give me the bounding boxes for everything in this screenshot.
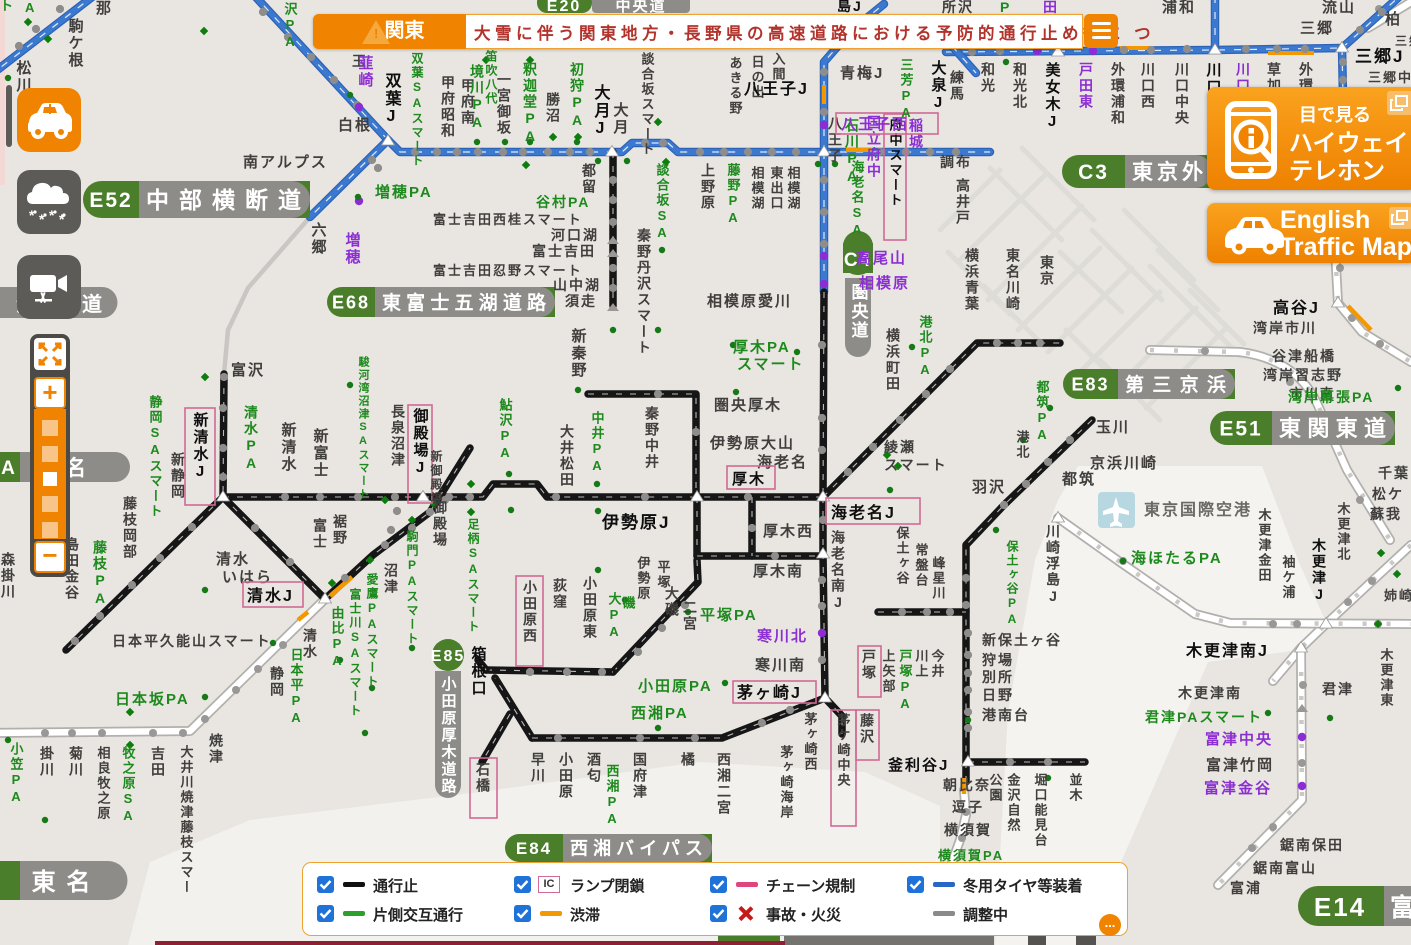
svg-text:箱根口: 箱根口 [470, 645, 487, 697]
svg-text:森掛川: 森掛川 [0, 551, 16, 600]
svg-text:川上: 川上 [914, 649, 930, 679]
svg-text:焼津: 焼津 [208, 732, 224, 765]
svg-text:境川PA: 境川PA [469, 63, 485, 132]
svg-text:清水: 清水 [216, 550, 250, 568]
svg-text:三郷料: 三郷料 [1395, 33, 1411, 48]
svg-text:甲府昭和: 甲府昭和 [440, 75, 456, 139]
svg-text:由比PA: 由比PA [330, 605, 345, 670]
svg-text:港南台: 港南台 [982, 707, 1030, 723]
svg-text:都留: 都留 [581, 163, 597, 195]
svg-text:六郷: 六郷 [310, 221, 327, 256]
svg-text:吉田: 吉田 [150, 745, 166, 778]
svg-text:大井川焼津藤枝スマー: 大井川焼津藤枝スマー [179, 744, 195, 895]
svg-text:圏央厚木: 圏央厚木 [714, 396, 782, 414]
svg-text:小笠PA: 小笠PA [9, 742, 25, 806]
svg-text:ト: ト [0, 0, 15, 13]
svg-text:いはら: いはら [222, 569, 273, 586]
svg-text:木更津北: 木更津北 [1336, 501, 1352, 562]
svg-text:君津: 君津 [1321, 681, 1354, 697]
svg-text:大井松田: 大井松田 [559, 423, 575, 488]
svg-text:浦和: 浦和 [1162, 0, 1196, 16]
svg-text:調布: 調布 [940, 154, 972, 170]
svg-text:堀口能見台: 堀口能見台 [1033, 773, 1049, 848]
svg-text:藤沢: 藤沢 [859, 712, 875, 745]
svg-text:横須賀PA: 横須賀PA [938, 848, 1004, 863]
svg-text:新清水: 新清水 [280, 421, 297, 473]
svg-text:掛川: 掛川 [39, 745, 55, 778]
svg-text:鋸南保田: 鋸南保田 [1280, 837, 1344, 853]
svg-text:清水PA: 清水PA [243, 404, 259, 473]
svg-text:戸塚PA: 戸塚PA [898, 649, 913, 713]
svg-text:御殿場: 御殿場 [432, 499, 448, 548]
svg-text:八王子J: 八王子J [743, 80, 809, 98]
svg-text:新御殿場: 新御殿場 [429, 449, 443, 506]
svg-text:秦野中井: 秦野中井 [644, 405, 660, 470]
svg-text:小田原PA: 小田原PA [638, 678, 713, 695]
svg-text:茅ヶ崎西: 茅ヶ崎西 [803, 711, 818, 772]
svg-text:富士吉田西桂スマート: 富士吉田西桂スマート [433, 212, 583, 227]
svg-text:狩場: 狩場 [982, 652, 1014, 668]
svg-text:松ケ: 松ケ [1372, 486, 1404, 502]
svg-text:寒川南: 寒川南 [755, 656, 806, 674]
svg-text:流山: 流山 [1322, 0, 1356, 16]
svg-text:保土ヶ谷: 保土ヶ谷 [895, 525, 911, 586]
svg-text:釜利谷J: 釜利谷J [887, 756, 949, 774]
svg-text:木更津金田: 木更津金田 [1257, 507, 1273, 583]
svg-text:高尾山: 高尾山 [856, 249, 907, 267]
svg-text:富津金谷: 富津金谷 [1204, 779, 1272, 797]
svg-text:富士吉田: 富士吉田 [532, 243, 596, 259]
svg-text:高谷J: 高谷J [1273, 298, 1320, 317]
svg-text:E20: E20 [547, 0, 581, 15]
svg-text:新秦野: 新秦野 [570, 327, 588, 379]
svg-text:小田原東: 小田原東 [582, 576, 598, 640]
svg-text:茅ケ崎中央: 茅ケ崎中央 [836, 712, 851, 788]
svg-text:E84: E84 [516, 839, 552, 858]
svg-text:小田原: 小田原 [558, 752, 574, 800]
svg-text:谷村PA: 谷村PA [536, 194, 590, 210]
svg-text:相模湖: 相模湖 [786, 165, 801, 211]
svg-text:東 名: 東 名 [32, 868, 93, 896]
svg-text:入間: 入間 [771, 52, 786, 82]
svg-text:寒川北: 寒川北 [757, 627, 808, 645]
svg-text:双葉SAスマート: 双葉SAスマート [410, 52, 424, 168]
svg-text:駒門PAスマート: 駒門PAスマート [405, 529, 419, 646]
svg-text:小田原西: 小田原西 [522, 580, 538, 644]
svg-text:新富士: 新富士 [312, 427, 329, 479]
svg-text:京浜川崎: 京浜川崎 [1090, 454, 1158, 472]
svg-text:那: 那 [96, 0, 113, 17]
svg-text:公園: 公園 [988, 773, 1003, 803]
svg-text:*: * [39, 211, 46, 227]
svg-text:海老名: 海老名 [757, 453, 808, 471]
svg-text:都筑: 都筑 [1061, 470, 1096, 488]
svg-text:海老名SA: 海老名SA [850, 159, 866, 239]
svg-text:C3: C3 [1078, 161, 1109, 184]
svg-text:厚木PA: 厚木PA [733, 338, 791, 356]
svg-text:*: * [59, 211, 66, 227]
svg-text:今井: 今井 [930, 648, 946, 679]
svg-text:川崎浮島J: 川崎浮島J [1045, 524, 1061, 606]
svg-text:小田原厚木道路: 小田原厚木道路 [440, 676, 458, 795]
svg-text:あきる野: あきる野 [728, 56, 743, 116]
svg-text:一宮御坂: 一宮御坂 [496, 72, 512, 136]
svg-text:談合坂SA: 談合坂SA [655, 162, 670, 242]
svg-text:伊勢原J: 伊勢原J [601, 512, 670, 532]
svg-text:駿河湾沼津SAスマート: 駿河湾沼津SAスマート [357, 355, 370, 501]
svg-text:大磯: 大磯 [664, 585, 680, 618]
svg-text:茅ヶ崎J: 茅ヶ崎J [737, 683, 802, 702]
svg-text:足柄SAスマート: 足柄SAスマート [466, 518, 480, 634]
svg-text:東富士五湖道路: 東富士五湖道路 [382, 291, 548, 314]
svg-text:並木: 並木 [1068, 772, 1084, 803]
svg-text:磯: 磯 [621, 595, 636, 611]
svg-text:A: A [1, 458, 17, 479]
svg-text:戸塚: 戸塚 [861, 649, 877, 681]
svg-text:増穂: 増穂 [344, 231, 361, 266]
svg-text:海ほたるPA: 海ほたるPA [1131, 549, 1223, 567]
svg-text:都筑PA: 都筑PA [1035, 379, 1051, 444]
svg-text:清水J: 清水J [247, 586, 294, 605]
svg-text:和光: 和光 [980, 62, 996, 94]
svg-text:西湘PA: 西湘PA [631, 704, 689, 722]
svg-text:富士川SAスマート: 富士川SAスマート [348, 587, 362, 718]
svg-text:酒匂: 酒匂 [586, 752, 602, 784]
svg-text:愛鷹PAスマート: 愛鷹PAスマート [365, 572, 379, 689]
svg-text:富浦: 富浦 [1230, 880, 1262, 896]
svg-text:日本坂PA: 日本坂PA [115, 690, 190, 708]
svg-text:E83: E83 [1071, 374, 1109, 394]
svg-text:金沢自然: 金沢自然 [1006, 772, 1022, 833]
svg-text:韮崎: 韮崎 [357, 54, 374, 89]
svg-text:中井PA: 中井PA [590, 410, 605, 475]
svg-text:御殿場J: 御殿場J [412, 407, 430, 478]
svg-text:高井戸: 高井戸 [955, 177, 971, 226]
svg-text:新清水J: 新清水J [192, 411, 209, 482]
svg-text:大PA: 大PA [607, 591, 622, 641]
svg-text:戸田東: 戸田東 [1078, 62, 1094, 110]
svg-text:P: P [1000, 0, 1011, 15]
svg-text:相模原愛川: 相模原愛川 [707, 292, 792, 310]
svg-text:増穂PA: 増穂PA [375, 183, 433, 201]
svg-text:*: * [49, 207, 56, 223]
svg-text:三芳PA: 三芳PA [899, 58, 914, 122]
svg-text:湾岸幕張PA: 湾岸幕張PA [1288, 389, 1374, 405]
svg-text:島J: 島J [837, 0, 863, 14]
svg-text:中部横断道: 中部横断道 [146, 187, 303, 213]
svg-text:三郷中: 三郷中 [1368, 70, 1411, 85]
svg-text:日本平久能山スマート: 日本平久能山スマート [112, 633, 272, 649]
svg-text:田: 田 [1043, 0, 1059, 15]
svg-text:E52: E52 [89, 189, 132, 212]
svg-text:木更津東: 木更津東 [1379, 647, 1395, 708]
svg-text:柏: 柏 [1385, 10, 1402, 28]
svg-text:富津中央: 富津中央 [1205, 730, 1273, 748]
svg-text:練馬: 練馬 [949, 69, 965, 102]
svg-text:蘇我: 蘇我 [1369, 506, 1402, 522]
svg-text:E85: E85 [431, 648, 465, 665]
svg-text:羽沢: 羽沢 [972, 478, 1006, 496]
svg-text:スマート: スマート [737, 356, 805, 373]
svg-text:長泉沼津: 長泉沼津 [390, 404, 406, 468]
svg-text:茅ヶ崎海岸: 茅ヶ崎海岸 [779, 744, 794, 820]
svg-text:君津PAスマート: 君津PAスマート [1144, 709, 1263, 725]
svg-text:港北PA: 港北PA [918, 314, 933, 379]
svg-text:河口湖: 河口湖 [551, 227, 599, 243]
svg-text:山中湖: 山中湖 [553, 277, 601, 293]
svg-text:大月: 大月 [612, 101, 630, 136]
svg-text:E14: E14 [1314, 892, 1366, 922]
svg-text:東出口: 東出口 [769, 165, 784, 211]
svg-text:沢PA: 沢PA [283, 1, 298, 51]
svg-text:所沢: 所沢 [942, 0, 974, 15]
svg-text:東名川崎: 東名川崎 [1005, 247, 1021, 312]
svg-text:藤枝PA: 藤枝PA [92, 539, 108, 608]
svg-text:湾岸習志野: 湾岸習志野 [1263, 367, 1343, 383]
svg-text:E68: E68 [332, 292, 370, 312]
svg-text:厚木南: 厚木南 [753, 562, 804, 580]
svg-text:藤枝岡部: 藤枝岡部 [122, 495, 138, 560]
svg-text:美女木J: 美女木J [1044, 61, 1062, 132]
svg-text:新保土ヶ谷: 新保土ヶ谷 [982, 632, 1062, 648]
svg-text:初狩PA: 初狩PA [569, 61, 585, 130]
svg-text:富士吉田忍野スマート: 富士吉田忍野スマート [433, 263, 583, 278]
svg-text:川口西: 川口西 [1140, 62, 1156, 110]
svg-text:新静岡: 新静岡 [170, 451, 186, 500]
svg-text:東京外: 東京外 [1132, 160, 1205, 184]
svg-text:和光北: 和光北 [1012, 62, 1028, 110]
svg-text:袖ケ浦: 袖ケ浦 [1281, 554, 1296, 600]
svg-text:峰星川: 峰星川 [931, 555, 947, 601]
svg-text:鮎沢PA: 鮎沢PA [498, 397, 513, 462]
svg-text:上野原: 上野原 [700, 163, 716, 211]
svg-text:石橋: 石橋 [475, 762, 491, 794]
svg-text:沼津: 沼津 [383, 563, 399, 595]
svg-text:橘: 橘 [680, 752, 696, 768]
svg-text:笛吹八代: 笛吹八代 [484, 49, 498, 106]
svg-text:谷津船橋: 谷津船橋 [1272, 348, 1336, 364]
svg-text:厚木: 厚木 [732, 470, 766, 488]
svg-text:駒ケ根: 駒ケ根 [67, 17, 84, 69]
svg-text:朝比奈: 朝比奈 [943, 777, 991, 793]
svg-text:富沢: 富沢 [231, 361, 265, 379]
svg-text:千葉: 千葉 [1378, 465, 1410, 481]
svg-text:常盤台: 常盤台 [914, 542, 930, 588]
svg-text:相模原: 相模原 [859, 274, 910, 292]
svg-text:伊勢原大山: 伊勢原大山 [709, 434, 795, 452]
svg-text:綾瀬: 綾瀬 [884, 439, 916, 455]
svg-text:南アルプス: 南アルプス [243, 153, 328, 171]
svg-text:木更津南: 木更津南 [1177, 685, 1242, 701]
svg-text:三郷J: 三郷J [1355, 46, 1404, 66]
svg-text:逗子: 逗子 [952, 799, 984, 815]
svg-text:秦野丹沢スマート: 秦野丹沢スマート [636, 227, 652, 356]
svg-text:湾岸市川: 湾岸市川 [1253, 320, 1317, 336]
svg-text:港北: 港北 [1015, 429, 1030, 460]
svg-text:荻窪: 荻窪 [552, 577, 568, 610]
svg-text:国府津: 国府津 [632, 752, 648, 800]
svg-text:上矢部: 上矢部 [881, 649, 896, 694]
svg-text:相良牧之原: 相良牧之原 [96, 745, 111, 821]
svg-text:藤野PA: 藤野PA [726, 162, 741, 227]
svg-text:別所: 別所 [981, 669, 1014, 685]
svg-text:白根: 白根 [338, 116, 372, 134]
svg-text:川口中央: 川口中央 [1174, 62, 1190, 126]
svg-text:平塚PA: 平塚PA [700, 607, 758, 624]
svg-text:*: * [29, 207, 36, 223]
svg-text:須走: 須走 [564, 293, 597, 309]
svg-text:勝沼: 勝沼 [545, 91, 561, 124]
svg-text:海老名南J: 海老名南J [830, 529, 846, 612]
svg-text:西湘二宮: 西湘二宮 [716, 752, 732, 816]
svg-text:A: A [25, 0, 36, 15]
svg-text:静岡: 静岡 [269, 665, 285, 698]
svg-text:裾野: 裾野 [332, 513, 348, 546]
svg-text:青梅J: 青梅J [840, 64, 884, 82]
svg-text:静岡SAスマート: 静岡SAスマート [148, 394, 163, 519]
svg-text:二宮: 二宮 [682, 600, 698, 632]
svg-text:早川: 早川 [530, 752, 546, 784]
svg-text:中央道: 中央道 [615, 0, 666, 15]
svg-text:菊川: 菊川 [68, 745, 84, 778]
svg-text:日本平PA: 日本平PA [289, 648, 304, 727]
svg-text:玉川: 玉川 [1096, 419, 1130, 436]
svg-text:清水: 清水 [302, 627, 318, 660]
svg-text:相模湖: 相模湖 [750, 165, 765, 211]
svg-text:木更津J: 木更津J [1311, 537, 1327, 604]
svg-text:伊勢原: 伊勢原 [636, 555, 652, 601]
svg-text:E51: E51 [1219, 418, 1262, 441]
svg-text:横浜青葉: 横浜青葉 [964, 247, 980, 312]
svg-text:横浜町田: 横浜町田 [885, 327, 901, 392]
svg-text:西湘PA: 西湘PA [605, 764, 620, 828]
svg-text:富士: 富士 [312, 517, 328, 550]
svg-text:外環浦和: 外環浦和 [1110, 61, 1126, 126]
svg-text:東京国際空港: 東京国際空港 [1144, 500, 1252, 519]
svg-text:保土ヶ谷PA: 保土ヶ谷PA [1005, 539, 1019, 628]
svg-text:富津: 富津 [1390, 893, 1411, 922]
svg-text:東京: 東京 [1039, 254, 1055, 287]
svg-text:木更津南J: 木更津南J [1185, 641, 1269, 660]
svg-text:牧之原SA: 牧之原SA [121, 745, 136, 825]
svg-text:大泉J: 大泉J [930, 59, 948, 113]
svg-text:富津竹岡: 富津竹岡 [1206, 756, 1274, 774]
svg-text:釈迦堂PA: 釈迦堂PA [522, 61, 538, 146]
svg-text:スマート: スマート [884, 457, 948, 473]
svg-text:厚木西: 厚木西 [763, 522, 814, 540]
svg-text:姉崎: 姉崎 [1384, 588, 1411, 603]
svg-text:談合坂スマート: 談合坂スマート [640, 51, 655, 157]
svg-text:海老名J: 海老名J [831, 503, 896, 522]
svg-text:日野: 日野 [982, 687, 1014, 703]
svg-text:鋸南富山: 鋸南富山 [1253, 860, 1317, 876]
svg-text:横須賀: 横須賀 [944, 822, 992, 838]
